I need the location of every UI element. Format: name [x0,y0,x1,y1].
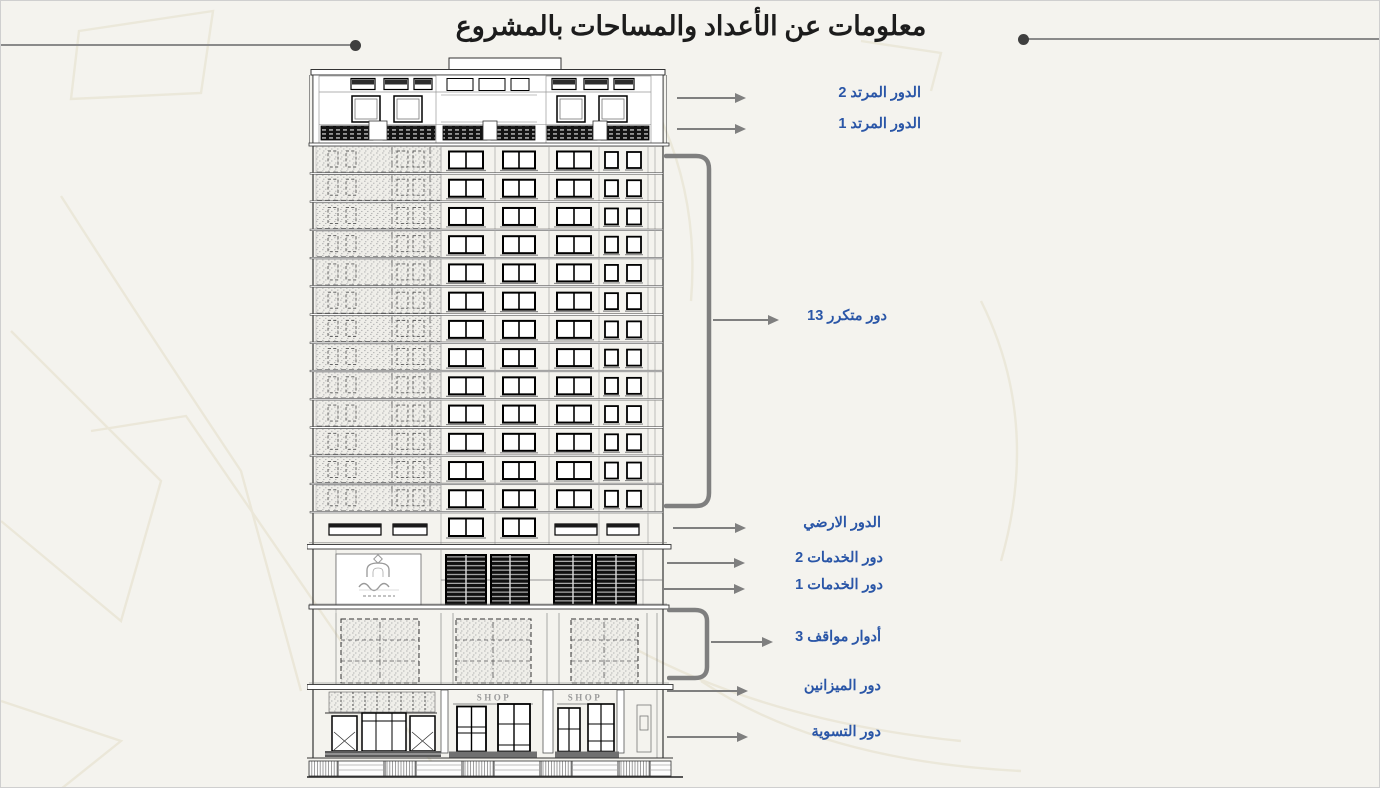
basement-sidewalk [307,758,683,777]
arrow-mezzanine [667,690,738,693]
bracket-parking-floors [667,607,715,681]
arrow-services-2 [667,562,735,565]
floor-label-basement: دور التسوية [811,724,881,740]
building-elevation: SHOP SHOP [307,56,683,778]
arrow-services-1 [662,588,735,591]
floor-label-parking: 3 أدوار مواقف [795,629,881,645]
mezzanine-floor: SHOP SHOP [325,690,657,758]
floor-label-setback-1: الدور المرتد 1 [838,116,921,132]
arrow-parking-floors [711,641,763,644]
parking-floors [307,613,673,690]
floor-label-typical-floors: 13 دور متكرر [807,308,887,324]
arrow-setback-1 [677,128,736,131]
slide-canvas: معلومات عن الأعداد والمساحات بالمشروع [0,0,1380,788]
floor-label-setback-2: الدور المرتد 2 [838,85,921,101]
arrow-basement [667,736,738,739]
floor-label-services-1: دور الخدمات 1 [795,577,883,593]
shop-sign-left: SHOP [477,693,512,703]
shop-sign-right: SHOP [568,693,603,703]
header-rule-right-dot [1018,34,1029,45]
floor-label-mezzanine: دور الميزانين [804,678,881,694]
floor-label-ground: الدور الارضي [803,515,881,531]
floor-label-services-2: دور الخدمات 2 [795,550,883,566]
page-title: معلومات عن الأعداد والمساحات بالمشروع [381,11,1001,42]
header-rule-left-dot [350,40,361,51]
typical-floors [310,146,663,513]
arrow-ground-floor [673,527,736,530]
arrow-typical-floors [713,319,769,322]
ground-floor [307,513,671,549]
header-rule-left [1,44,353,46]
header-rule-right [1027,38,1380,40]
arrow-setback-2 [677,97,736,100]
bracket-typical-floors [664,153,716,509]
services-floors [309,549,669,613]
setback-floors [309,58,669,146]
